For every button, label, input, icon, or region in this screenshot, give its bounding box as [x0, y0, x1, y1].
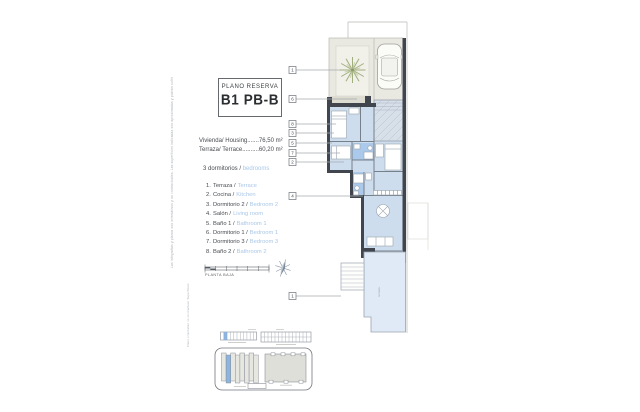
plan-type-label: PLANO RESERVA — [219, 84, 281, 90]
building-right — [265, 353, 306, 383]
legend-es: Dormitorio 2 / — [213, 202, 248, 208]
legend-en: Living room — [233, 211, 263, 217]
legend-es: Dormitorio 1 / — [213, 230, 248, 236]
vertical-disclaimer-left: Las infografías y planos son orientativo… — [169, 52, 177, 268]
site-key-plan — [214, 326, 324, 396]
site-block — [215, 348, 312, 390]
bedrooms-es: 3 dormitorios / — [203, 166, 241, 172]
legend-num: 6. — [206, 229, 213, 238]
key-strip-2 — [261, 329, 311, 345]
legend-es: Dormitorio 3 / — [213, 239, 248, 245]
plan-sheet: Las infografías y planos son orientativo… — [0, 0, 640, 412]
unit-code: B1 PB-B — [219, 91, 281, 107]
legend-num: 2. — [206, 191, 213, 200]
legend-en: Bathroom 1 — [237, 221, 267, 227]
legend-num: 5. — [206, 220, 213, 229]
highlighted-unit — [226, 355, 231, 383]
legend-item: 7.Dormitorio 3 /Bedroom 3 — [206, 238, 278, 247]
site-pool — [248, 384, 266, 389]
legend-num: 4. — [206, 210, 213, 219]
vertical-disclaimer-bottom: Plano orientativo no contractual. Superf… — [185, 269, 192, 347]
legend-item: 4.Salón /Living room — [206, 210, 278, 219]
bedrooms-line: 3 dormitorios / bedrooms — [203, 166, 269, 172]
building-left — [222, 353, 259, 383]
terrace-label: terraza — [377, 287, 381, 297]
legend-num: 3. — [206, 201, 213, 210]
legend-en: Kitchen — [236, 192, 255, 198]
legend-item: 3.Dormitorio 2 /Bedroom 2 — [206, 201, 278, 210]
legend-num: 1. — [206, 182, 213, 191]
title-block: PLANO RESERVA B1 PB-B — [218, 78, 282, 117]
key-strip-1 — [221, 329, 257, 343]
legend-es: Baño 1 / — [213, 221, 235, 227]
legend-item: 6.Dormitorio 1 /Bedroom 1 — [206, 229, 278, 238]
legend-en: Terrace — [238, 183, 257, 189]
patio-step — [329, 96, 371, 104]
neighbor-outline — [408, 203, 428, 250]
bedrooms-en: bedrooms — [243, 166, 270, 172]
pergola-area — [374, 100, 403, 141]
terrace-stairs — [341, 263, 364, 290]
room-legend: 1.Terraza /Terrace 2.Cocina /Kitchen 3.D… — [206, 182, 278, 257]
legend-num: 8. — [206, 248, 213, 257]
legend-es: Terraza / — [213, 183, 236, 189]
legend-en: Bedroom 1 — [250, 230, 278, 236]
legend-item: 5.Baño 1 /Bathroom 1 — [206, 220, 278, 229]
legend-en: Bedroom 2 — [250, 202, 278, 208]
floor-plan: terraza 1 6 8 3 5 7 — [280, 15, 440, 345]
legend-en: Bedroom 3 — [250, 239, 278, 245]
legend-es: Salón / — [213, 211, 231, 217]
car-icon — [376, 44, 403, 89]
legend-item: 1.Terraza /Terrace — [206, 182, 278, 191]
legend-en: Bathroom 2 — [237, 249, 267, 255]
legend-es: Cocina / — [213, 192, 234, 198]
legend-item: 8.Baño 2 /Bathroom 2 — [206, 248, 278, 257]
legend-num: 7. — [206, 238, 213, 247]
callouts: 1 6 8 3 5 7 2 4 1 — [289, 67, 296, 300]
scale-caption: PLANTA BAJA — [205, 273, 234, 277]
legend-es: Baño 2 / — [213, 249, 235, 255]
legend-item: 2.Cocina /Kitchen — [206, 191, 278, 200]
lower-terrace — [364, 252, 406, 332]
